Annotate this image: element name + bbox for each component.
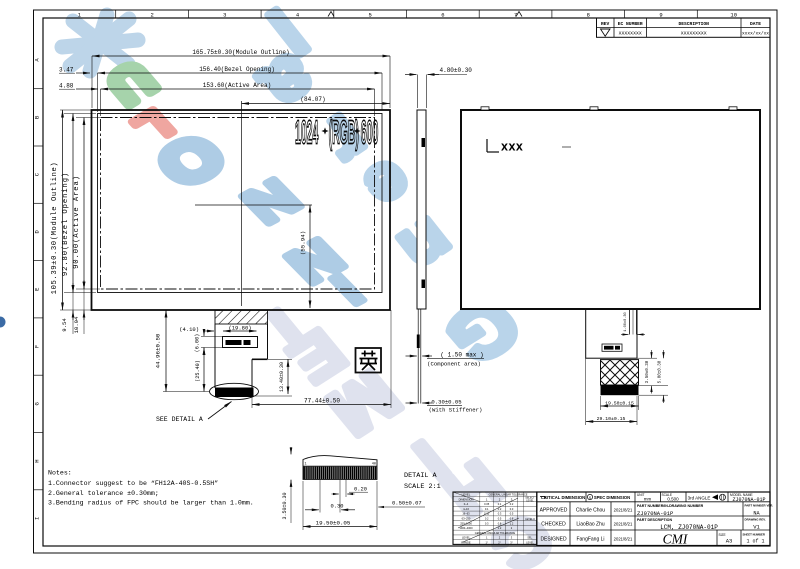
svg-text:0.8: 0.8 bbox=[498, 521, 502, 525]
svg-text:F: F bbox=[33, 345, 40, 348]
svg-text:0.5: 0.5 bbox=[510, 512, 514, 516]
svg-text:0.30: 0.30 bbox=[331, 504, 344, 510]
svg-text:1.2: 1.2 bbox=[510, 521, 514, 525]
svg-text:G: G bbox=[33, 402, 40, 405]
svg-text:0.1: 0.1 bbox=[485, 507, 489, 511]
svg-text:0.1: 0.1 bbox=[498, 502, 502, 506]
svg-text:6: 6 bbox=[441, 11, 444, 18]
svg-text:DRAWING REV.: DRAWING REV. bbox=[745, 518, 766, 522]
svg-text:(19.80): (19.80) bbox=[228, 324, 251, 331]
svg-text:1°: 1° bbox=[485, 540, 487, 544]
svg-text:I: I bbox=[33, 517, 40, 520]
svg-text:4.80±0.30: 4.80±0.30 bbox=[440, 67, 473, 74]
svg-text:V1: V1 bbox=[753, 524, 760, 531]
svg-text:H: H bbox=[33, 459, 40, 462]
svg-text:PART DESCRIPTION: PART DESCRIPTION bbox=[637, 518, 672, 522]
svg-text:1000~4000: 1000~4000 bbox=[459, 526, 473, 530]
svg-text:3.50±0.30: 3.50±0.30 bbox=[646, 360, 650, 383]
svg-text:LEVEL: LEVEL bbox=[526, 500, 534, 503]
svg-text:90.00(Active Area): 90.00(Active Area) bbox=[73, 175, 81, 269]
svg-text:105.39±0.30(Module Outline): 105.39±0.30(Module Outline) bbox=[51, 162, 59, 295]
svg-text:165.75±0.30(Module Outline): 165.75±0.30(Module Outline) bbox=[192, 49, 289, 56]
svg-text:0.2: 0.2 bbox=[510, 502, 514, 506]
svg-text:xxx: xxx bbox=[501, 140, 523, 154]
svg-text:1.2: 1.2 bbox=[498, 526, 502, 530]
svg-text:0.05: 0.05 bbox=[484, 502, 490, 506]
svg-text:FangFang Li: FangFang Li bbox=[576, 537, 604, 543]
svg-text:CMI: CMI bbox=[663, 532, 689, 547]
svg-text:19.50±0.05: 19.50±0.05 bbox=[316, 520, 351, 527]
svg-text:0.3: 0.3 bbox=[498, 512, 502, 516]
svg-text:LiaoBao Zhu: LiaoBao Zhu bbox=[576, 522, 605, 528]
svg-text:29.10±0.15: 29.10±0.15 bbox=[597, 416, 626, 422]
svg-text:LEVEL #: LEVEL # bbox=[525, 518, 535, 521]
svg-text:0.3: 0.3 bbox=[485, 521, 489, 525]
svg-text:PART NUMBER/IN-DRAWING NUMBER: PART NUMBER/IN-DRAWING NUMBER bbox=[637, 504, 704, 508]
svg-text:156.40(Bezel Opening): 156.40(Bezel Opening) bbox=[199, 66, 275, 73]
svg-text:250~1000: 250~1000 bbox=[460, 521, 472, 525]
svg-text:DESIGNED: DESIGNED bbox=[540, 537, 567, 543]
svg-text:2021/8/21: 2021/8/21 bbox=[614, 536, 633, 541]
svg-text:(6.00): (6.00) bbox=[195, 334, 201, 353]
svg-text:GENERAL LINEAR TOLERANCE: GENERAL LINEAR TOLERANCE bbox=[489, 493, 528, 497]
svg-text:CRITICAL DIMENSION: CRITICAL DIMENSION bbox=[541, 495, 585, 500]
svg-text:44.96±0.50: 44.96±0.50 bbox=[155, 333, 162, 368]
svg-text:SHEET NUMBER: SHEET NUMBER bbox=[743, 533, 765, 537]
svg-text:3.Bending radius of FPC should: 3.Bending radius of FPC should be larger… bbox=[48, 499, 254, 506]
svg-text:APPROVED: APPROVED bbox=[540, 508, 568, 514]
svg-text:1.Connector suggest to be “FH1: 1.Connector suggest to be “FH12A-40S-0.5… bbox=[48, 480, 218, 487]
svg-text:77.44±0.50: 77.44±0.50 bbox=[304, 397, 340, 404]
svg-text:0.15: 0.15 bbox=[484, 512, 490, 516]
svg-text:LEVEL: LEVEL bbox=[462, 536, 471, 540]
svg-text:4~16: 4~16 bbox=[463, 507, 469, 511]
svg-text:2: 2 bbox=[150, 11, 153, 18]
svg-text:(With Stiffener): (With Stiffener) bbox=[429, 407, 483, 414]
svg-text:9.54: 9.54 bbox=[61, 318, 68, 332]
svg-text:(RGB): (RGB) bbox=[329, 115, 359, 151]
svg-text:3rd ANGLE: 3rd ANGLE bbox=[688, 495, 711, 500]
svg-text:2.General tolerance ±0.30mm;: 2.General tolerance ±0.30mm; bbox=[48, 490, 159, 497]
svg-text:1024: 1024 bbox=[295, 115, 319, 151]
svg-text:1.00±0.30: 1.00±0.30 bbox=[624, 312, 628, 331]
svg-text:REV: REV bbox=[601, 21, 610, 27]
svg-text:Notes:: Notes: bbox=[48, 470, 72, 477]
svg-text:0.5: 0.5 bbox=[498, 517, 502, 521]
svg-text:10: 10 bbox=[730, 11, 737, 18]
svg-text:ZJ070NA-01P: ZJ070NA-01P bbox=[637, 510, 673, 517]
svg-text:0.2: 0.2 bbox=[485, 517, 489, 521]
svg-text:13.40±0.30: 13.40±0.30 bbox=[279, 362, 285, 392]
svg-text:SEL.: SEL. bbox=[527, 537, 533, 540]
svg-text:19.50±0.15: 19.50±0.15 bbox=[605, 400, 634, 406]
svg-text:3: 3 bbox=[223, 11, 226, 18]
svg-text:16~63: 16~63 bbox=[462, 512, 470, 516]
svg-text:0.500: 0.500 bbox=[667, 497, 679, 502]
svg-text:SIZE: SIZE bbox=[719, 533, 726, 537]
svg-text:RANGE: RANGE bbox=[461, 540, 470, 544]
svg-text:63~250: 63~250 bbox=[462, 517, 471, 521]
svg-text:GENERAL ANGULAR TOLERANCE: GENERAL ANGULAR TOLERANCE bbox=[475, 532, 516, 535]
svg-text:LEVEL: LEVEL bbox=[526, 541, 534, 544]
svg-text:3.50±0.30: 3.50±0.30 bbox=[282, 492, 288, 519]
svg-text:(4.10): (4.10) bbox=[179, 326, 199, 333]
svg-text:(55.94): (55.94) bbox=[300, 231, 307, 255]
svg-text:Charlie Chou: Charlie Chou bbox=[576, 508, 605, 514]
svg-text:8: 8 bbox=[587, 11, 590, 18]
svg-text:9: 9 bbox=[659, 11, 662, 18]
svg-text:XXXXXXXXX: XXXXXXXXX bbox=[681, 31, 707, 37]
svg-text:2021/8/21: 2021/8/21 bbox=[614, 521, 633, 526]
svg-text:0.2: 0.2 bbox=[498, 507, 502, 511]
svg-text:92.80(Bezel Opening): 92.80(Bezel Opening) bbox=[62, 172, 70, 276]
svg-text:XXXXXXXX: XXXXXXXX bbox=[619, 31, 642, 37]
svg-text:(84.07): (84.07) bbox=[300, 96, 325, 103]
svg-text:0~4: 0~4 bbox=[464, 502, 469, 506]
svg-text:40: 40 bbox=[372, 463, 376, 467]
svg-text:xxxx/xx/xx: xxxx/xx/xx bbox=[742, 31, 769, 37]
svg-text:NA: NA bbox=[753, 511, 760, 517]
svg-text:5.00±0.30: 5.00±0.30 bbox=[659, 360, 663, 383]
svg-text:ZJ070NA-01P: ZJ070NA-01P bbox=[732, 497, 765, 503]
svg-text:DIMENSION: DIMENSION bbox=[459, 497, 474, 501]
svg-text:2021/8/21: 2021/8/21 bbox=[614, 507, 633, 512]
svg-text:0.8: 0.8 bbox=[510, 517, 514, 521]
svg-text:LCM, ZJ070NA-01P: LCM, ZJ070NA-01P bbox=[660, 524, 718, 531]
svg-text:DESCRIPTION: DESCRIPTION bbox=[679, 21, 710, 27]
svg-text:( 1.50 max ): ( 1.50 max ) bbox=[440, 351, 483, 358]
svg-text:5: 5 bbox=[369, 11, 372, 18]
svg-text:0.30±0.05: 0.30±0.05 bbox=[431, 398, 461, 405]
svg-text:600: 600 bbox=[361, 115, 379, 151]
svg-text:SCALE 2:1: SCALE 2:1 bbox=[404, 483, 441, 491]
svg-text:2°: 2° bbox=[498, 540, 500, 544]
svg-text:mm: mm bbox=[644, 497, 652, 502]
svg-text:A3: A3 bbox=[726, 538, 733, 545]
svg-text:153.60(Active Area): 153.60(Active Area) bbox=[203, 82, 271, 89]
svg-text:PART NUMBER VER.: PART NUMBER VER. bbox=[745, 504, 774, 508]
svg-text:10.94: 10.94 bbox=[73, 316, 80, 333]
svg-text:(Component area): (Component area) bbox=[427, 360, 481, 367]
svg-text:0.20: 0.20 bbox=[354, 486, 367, 492]
svg-text:CHECKED: CHECKED bbox=[541, 522, 566, 528]
svg-text:1 of 1: 1 of 1 bbox=[746, 538, 764, 544]
svg-text:(25.40): (25.40) bbox=[195, 360, 201, 382]
svg-text:DATE: DATE bbox=[750, 21, 761, 27]
svg-text:0.3: 0.3 bbox=[510, 507, 514, 511]
svg-text:LEVEL: LEVEL bbox=[462, 493, 471, 497]
svg-text:0.50±0.07: 0.50±0.07 bbox=[392, 500, 422, 507]
svg-text:EC NUMBER: EC NUMBER bbox=[618, 21, 643, 27]
svg-text:3°: 3° bbox=[510, 540, 512, 544]
svg-text:SEE DETAIL A: SEE DETAIL A bbox=[156, 416, 203, 423]
svg-text:SPEC DIMENSION: SPEC DIMENSION bbox=[594, 495, 630, 500]
svg-text:3.47: 3.47 bbox=[59, 66, 74, 73]
svg-text:1: 1 bbox=[305, 463, 307, 467]
svg-text:4.88: 4.88 bbox=[59, 82, 74, 89]
svg-text:DETAIL A: DETAIL A bbox=[404, 472, 438, 480]
